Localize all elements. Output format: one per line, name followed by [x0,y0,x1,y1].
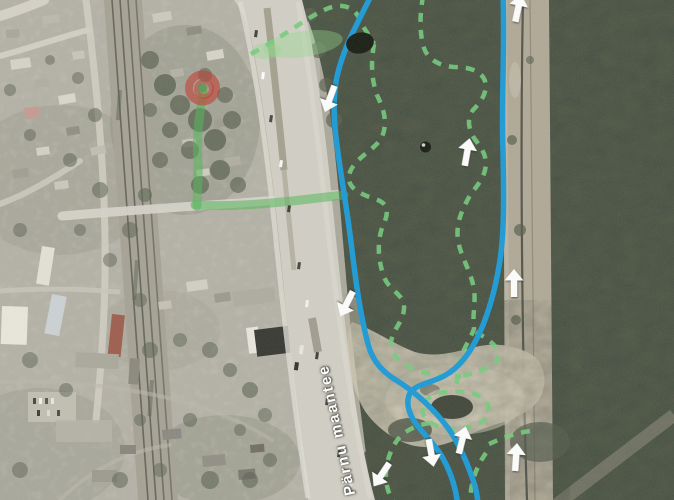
photo-grain [0,0,674,500]
map-container: Pärnu maantee [0,0,674,500]
aerial-photo-map [0,0,674,500]
